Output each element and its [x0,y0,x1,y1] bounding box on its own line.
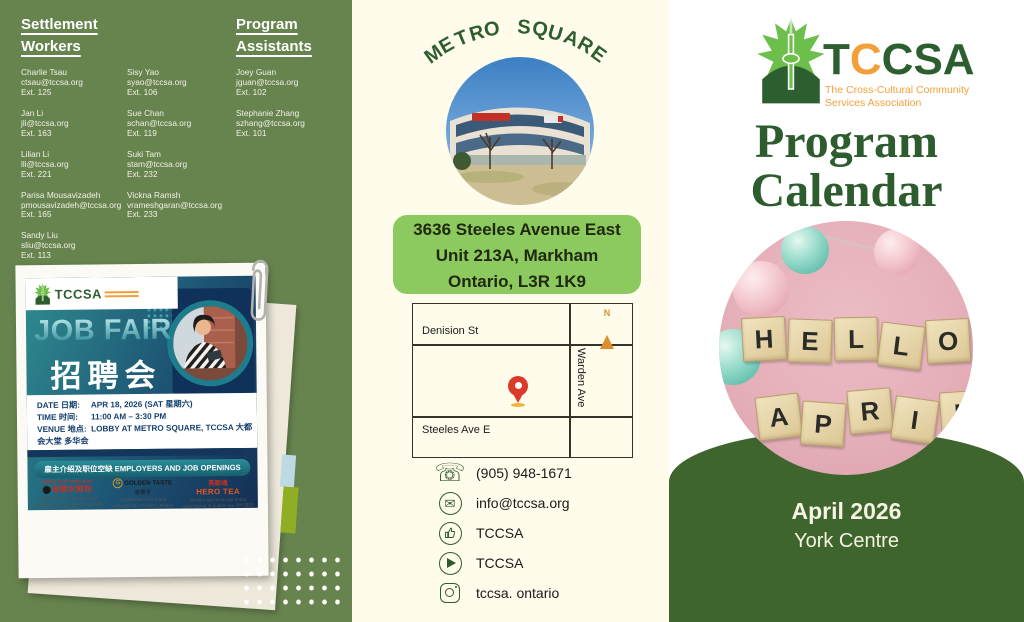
staff-ext: Ext. 165 [21,210,125,220]
contact-list: ☏ (905) 948-1671 ✉ info@tccsa.org TCCSA … [436,458,572,608]
arc-letter: O [482,17,501,42]
map-road-line-bottom [413,416,632,418]
program-assistants-column: Joey Guan jguan@tccsa.org Ext. 102 Steph… [236,68,340,150]
letter-tile: E [787,318,833,364]
hello-tiles: HELLO [741,317,971,361]
location-map: Denision St Steeles Ave E Warden Ave N [412,303,633,458]
instagram-row: tccsa. ontario [436,578,572,608]
cotton-ball-light [874,229,920,275]
flyer-title-english: JOB FAIR [34,314,172,348]
map-location-pin-icon [507,376,529,406]
flyer-employers-banner: 雇主介绍及职位空缺 EMPLOYERS AND JOB OPENINGS [34,459,251,478]
hello-april-photo: HELLO APRIL [719,221,973,475]
month-label: April 2026 [669,498,1024,525]
cotton-ball-light [781,226,829,274]
settlement-workers-column-2: Sisy Yao syao@tccsa.org Ext. 106 Sue Cha… [127,68,231,231]
paperclip [243,249,273,335]
letter-tile: H [741,316,787,362]
tccsa-wordmark-block: TCCSA The Cross-Cultural Community Servi… [831,16,975,109]
woman-photo-illustration [173,306,236,369]
golden-taste-g-icon: G [113,478,123,488]
tccsa-logo: TCCSA The Cross-Cultural Community Servi… [751,16,975,109]
address-line-1: 3636 Steeles Avenue East [393,217,641,243]
staff-ext: Ext. 221 [21,170,125,180]
letter-tile: A [754,392,803,441]
staff-ext: Ext. 102 [236,88,340,98]
letter-tile: L [834,317,879,362]
brochure-page: Settlement Workers Program Assistants Ch… [0,0,1024,622]
address-line-2: Unit 213A, Markham [393,243,641,269]
cover-footer: April 2026 York Centre [669,498,1024,553]
employer-golden-taste: GGOLDEN TASTE 金筷子 Established food brand… [107,478,179,511]
tccsa-leaf-icon [33,283,53,305]
paper-accent-olive [280,487,298,534]
staff-entry: Suki Tam stam@tccsa.org Ext. 232 [127,150,231,180]
flyer-logo-text: TCCSA [55,286,102,301]
tccsa-tagline: The Cross-Cultural Community Services As… [825,84,975,109]
map-street-bottom-label: Steeles Ave E [422,424,490,436]
phone-row: ☏ (905) 948-1671 [436,458,572,488]
cotton-ball-light [733,261,789,317]
phone-number: (905) 948-1671 [476,465,572,481]
job-fair-flyer: TCCSA JOB FAIR 招聘会 DATE 日期:APR 18, 2026 … [26,276,258,510]
metro-square-building-photo [446,57,594,205]
staff-ext: Ext. 233 [127,210,231,220]
flyer-info-section: DATE 日期:APR 18, 2026 (SAT 星期六) TIME 时间:1… [27,393,258,450]
instagram-icon [436,583,464,603]
staff-panel: Settlement Workers Program Assistants Ch… [0,0,352,622]
instagram-handle: tccsa. ontario [476,585,559,601]
tccsa-wordmark: TCCSA [823,38,975,82]
april-tiles: APRIL [755,389,973,433]
map-road-line-right [569,304,571,457]
employer-hero-tea: 英歌魂 HERO TEA Modern tea beverage brand s… [182,477,254,510]
paper-accent-blue [280,455,296,488]
employer-moms-pan-fried-bun: MOM'S PAN FRIED BUN 老娘水煎包 Canada's first… [32,478,104,510]
staff-ext: Ext. 119 [127,129,231,139]
staff-ext: Ext. 163 [21,129,125,139]
flyer-logo-tagline-lines [105,289,139,297]
program-assistants-heading: Program Assistants [236,14,312,58]
map-street-right-label: Warden Ave [575,348,587,407]
location-panel: METRO SQUARE [352,0,669,622]
address-line-3: Ontario, L3R 1K9 [393,269,641,295]
compass-n-label: N [593,309,621,318]
address-box: 3636 Steeles Avenue East Unit 213A, Mark… [393,215,641,294]
staff-entry: Parisa Mousavizadeh pmousavizadeh@tccsa.… [21,191,125,221]
staff-entry: Stephanie Zhang szhang@tccsa.org Ext. 10… [236,109,340,139]
flyer-venue-row: VENUE 地点:LOBBY AT METRO SQUARE, TCCSA 大都… [37,422,257,448]
compass-arrow-icon [600,318,614,349]
moms-face-icon [43,486,51,494]
settlement-workers-column-1: Charlie Tsau ctsau@tccsa.org Ext. 125 Ja… [21,68,125,272]
staff-entry: Joey Guan jguan@tccsa.org Ext. 102 [236,68,340,98]
job-fair-polaroid: TCCSA JOB FAIR 招聘会 DATE 日期:APR 18, 2026 … [15,263,268,579]
flyer-header: TCCSA [26,277,178,311]
settlement-workers-heading: Settlement Workers [21,14,98,58]
letter-tile: L [939,390,973,437]
youtube-row: TCCSA [436,548,572,578]
compass: N [593,309,621,336]
map-street-top-label: Denision St [422,325,478,337]
staff-entry: Sisy Yao syao@tccsa.org Ext. 106 [127,68,231,98]
facebook-row: TCCSA [436,518,572,548]
youtube-handle: TCCSA [476,555,523,571]
decorative-dot-grid [240,553,344,609]
staff-entry: Jan Li jli@tccsa.org Ext. 163 [21,109,125,139]
letter-tile: R [846,387,894,435]
staff-ext: Ext. 125 [21,88,125,98]
letter-tile: L [877,321,926,370]
flyer-employer-logos: MOM'S PAN FRIED BUN 老娘水煎包 Canada's first… [32,477,254,510]
youtube-play-icon [436,552,464,575]
staff-entry: Sandy Liu sliu@tccsa.org Ext. 113 [21,231,125,261]
staff-ext: Ext. 232 [127,170,231,180]
staff-ext: Ext. 113 [21,251,125,261]
letter-tile: I [890,395,940,445]
email-row: ✉ info@tccsa.org [436,488,572,518]
cover-panel: TCCSA The Cross-Cultural Community Servi… [669,0,1024,622]
email-icon: ✉ [436,492,464,515]
arc-letter: S [517,16,532,40]
email-address: info@tccsa.org [476,495,570,511]
centre-label: York Centre [669,530,1024,553]
phone-icon: ☏ [436,461,464,486]
facebook-handle: TCCSA [476,525,523,541]
letter-tile: O [925,318,971,364]
staff-ext: Ext. 106 [127,88,231,98]
staff-entry: Charlie Tsau ctsau@tccsa.org Ext. 125 [21,68,125,98]
program-calendar-title: Program Calendar [669,118,1024,216]
letter-tile: P [800,400,847,447]
staff-entry: Vickna Ramsh vrameshgaran@tccsa.org Ext.… [127,191,231,221]
tccsa-leaf-icon [751,16,831,106]
flyer-title-chinese: 招聘会 [50,350,161,396]
staff-entry: Sue Chan schan@tccsa.org Ext. 119 [127,109,231,139]
facebook-thumbs-up-icon [436,522,464,545]
staff-ext: Ext. 101 [236,129,340,139]
flyer-woman-photo [167,300,254,387]
staff-entry: Lilian Li lli@tccsa.org Ext. 221 [21,150,125,180]
